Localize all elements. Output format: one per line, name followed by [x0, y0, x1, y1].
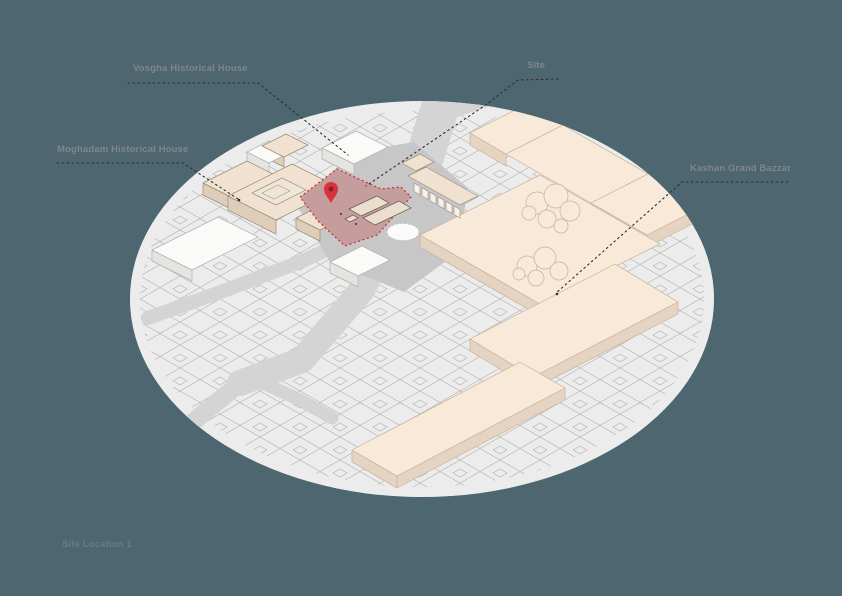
map-disc	[130, 88, 714, 497]
site-location-diagram: Vosgha Historical House Site Moghadam Hi…	[0, 0, 842, 596]
figure-caption: Site Location 1	[62, 539, 132, 550]
label-site: Site	[527, 60, 545, 71]
axonometric-map	[0, 0, 842, 596]
label-moghadam-historical-house: Moghadam Historical House	[57, 144, 189, 155]
label-kashan-grand-bazzar: Kashan Grand Bazzar	[690, 163, 791, 174]
roundabout	[387, 224, 419, 241]
label-vosgha-historical-house: Vosgha Historical House	[133, 63, 248, 74]
